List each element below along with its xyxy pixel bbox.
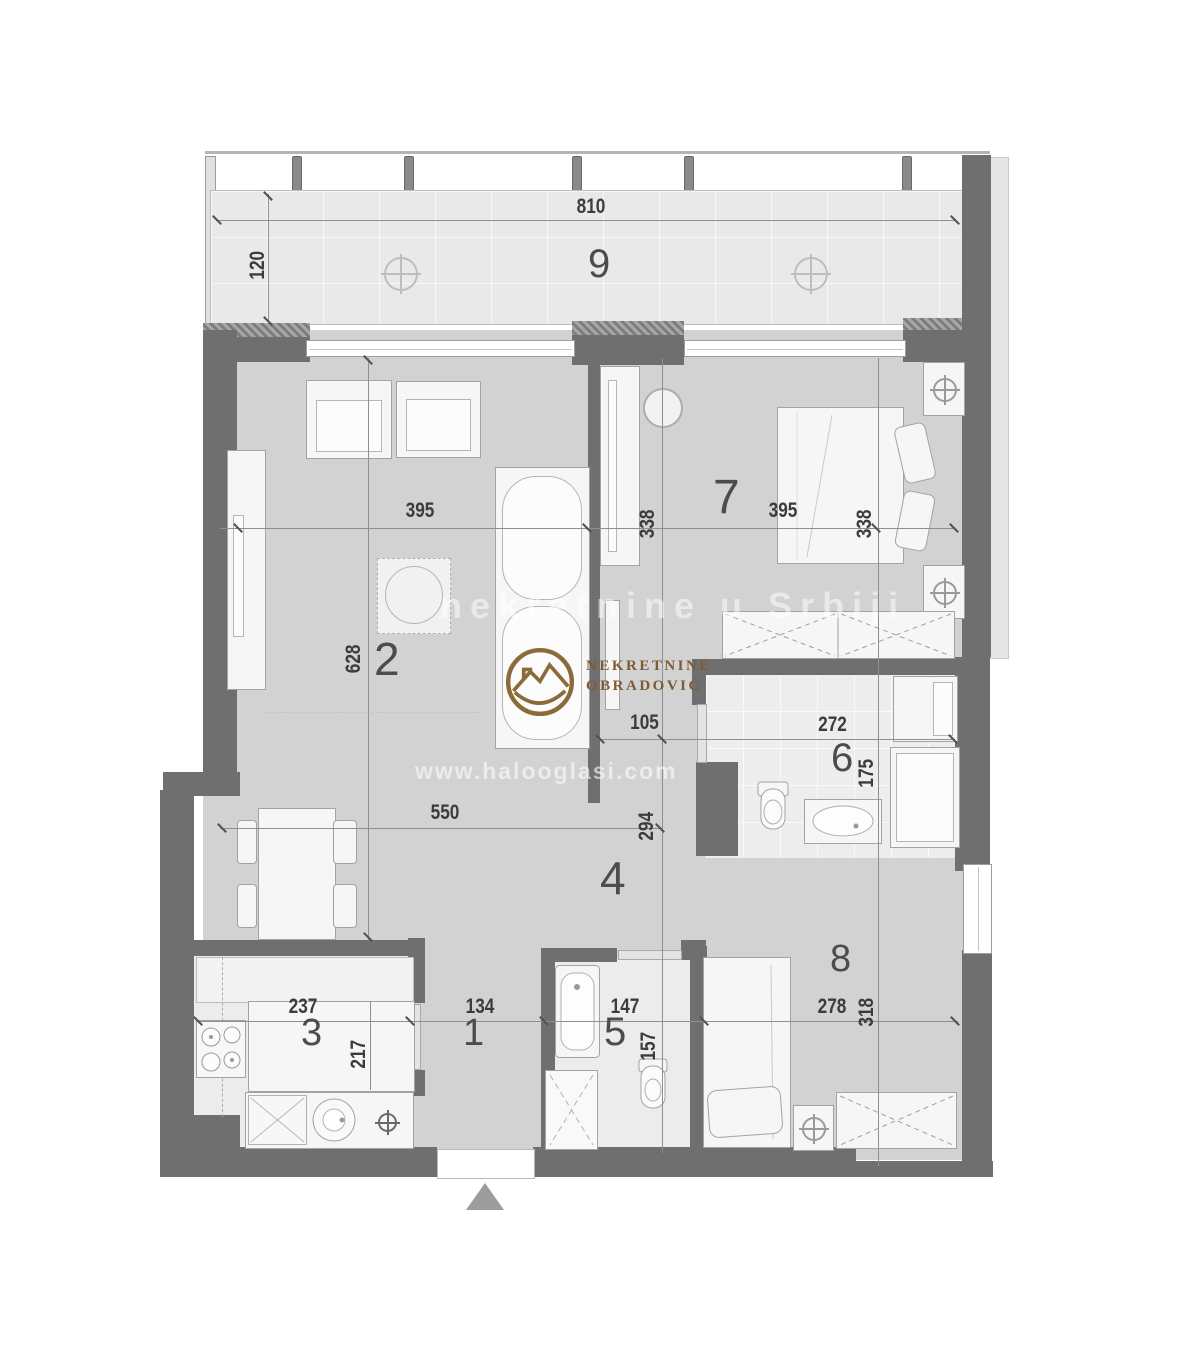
watermark-url: www.halooglasi.com — [415, 758, 678, 785]
dim-label-bedroom7-height: 338 — [853, 486, 877, 538]
railing-post — [404, 156, 414, 194]
wardrobe — [836, 1092, 957, 1149]
washbasin — [804, 799, 882, 844]
room-label-hall: 4 — [600, 855, 626, 901]
wall-right-mid — [955, 657, 990, 871]
dim-label-living-height: 628 — [342, 621, 366, 673]
double-bed — [777, 407, 904, 564]
reference-line — [265, 712, 480, 713]
wall-bottom-bedroom8 — [700, 1147, 856, 1177]
toilet — [755, 781, 791, 831]
dim-label-bedroom8-height: 318 — [855, 977, 879, 1026]
window-bedroom8 — [963, 864, 992, 954]
railing-post — [292, 156, 302, 194]
kitchen-cabinet-x — [248, 1095, 307, 1145]
shower — [545, 1070, 598, 1150]
window-terrace-right — [684, 340, 906, 357]
wall-bottom-kitchen — [237, 1147, 437, 1177]
dining-chair — [237, 820, 257, 864]
window-terrace-left — [306, 340, 575, 357]
room-label-hallway1: 1 — [463, 1014, 484, 1052]
toilet — [637, 1058, 669, 1110]
agency-name-line1: NEKRETNINE — [586, 658, 712, 675]
agency-name-line2: OBRADOVIĆ — [586, 678, 702, 695]
balcony-side-strip — [990, 157, 1009, 659]
wall-bath6-left-block — [696, 762, 738, 856]
dim-label-kitchen-height: 217 — [347, 1019, 371, 1068]
laundry-closet-inner — [933, 682, 953, 736]
bed-pillow — [706, 1085, 783, 1138]
floor-plan: 810 120 395 628 338 395 338 105 272 175 … — [0, 0, 1200, 1369]
dining-chair — [237, 884, 257, 928]
ceiling-light-icon — [384, 257, 418, 291]
bathtub — [555, 965, 600, 1058]
room-label-living: 2 — [374, 636, 400, 682]
room-label-bedroom7: 7 — [713, 474, 740, 522]
dim-label-living-width: 395 — [391, 499, 448, 523]
wall-left-lower — [160, 790, 194, 1125]
dim-label-bedroom8-width: 278 — [803, 995, 860, 1019]
lamp-icon — [933, 378, 957, 402]
wall-bath6-top — [698, 659, 956, 675]
dim-line — [598, 739, 955, 740]
balcony-rail-line — [205, 151, 990, 154]
railing-post — [572, 156, 582, 194]
stove — [196, 1020, 246, 1078]
dim-label-bath6-width: 272 — [806, 713, 859, 737]
wall-bath5-top — [541, 948, 617, 962]
railing-post — [902, 156, 912, 194]
dim-label-hall-height: 294 — [635, 791, 659, 840]
dim-label-bath5-height: 157 — [637, 1011, 661, 1060]
wall-bottom-center — [533, 1147, 705, 1177]
dim-label-balcony-width: 810 — [562, 195, 619, 219]
dim-line — [216, 220, 956, 221]
ceiling-lamp — [643, 388, 683, 428]
wall-right-top — [962, 155, 991, 657]
armchair-seat — [316, 400, 382, 452]
dim-label-corridor-width: 105 — [618, 711, 671, 735]
dim-label-bath6-height: 175 — [855, 738, 879, 787]
ceiling-light-icon — [794, 257, 828, 291]
corridor-wardrobe-door — [608, 380, 617, 552]
dim-line — [368, 358, 369, 940]
dim-label-bedroom7-width: 395 — [754, 499, 811, 523]
wall — [903, 330, 963, 362]
room-label-kitchen: 3 — [301, 1014, 322, 1052]
room-label-bedroom8: 8 — [830, 940, 851, 978]
room-label-bathroom6: 6 — [831, 738, 853, 778]
entrance-arrow — [466, 1183, 504, 1210]
coffee-table — [385, 566, 443, 624]
corridor-wardrobe — [600, 366, 640, 566]
dim-label-balcony-depth: 120 — [246, 230, 270, 279]
entrance-door-gap — [437, 1149, 535, 1179]
railing-post — [684, 156, 694, 194]
watermark-slogan: nekretnine u Srbiji — [440, 585, 906, 627]
burner-icon — [378, 1113, 397, 1132]
wall-corner-bl — [160, 1115, 240, 1177]
door-bathroom5 — [618, 950, 682, 960]
agency-logo-icon — [503, 645, 577, 719]
dim-line — [220, 828, 662, 829]
dining-chair — [333, 884, 357, 928]
dining-chair — [333, 820, 357, 864]
door-bathroom6 — [697, 704, 707, 763]
room-label-terrace: 9 — [588, 244, 610, 284]
room-label-bathroom5: 5 — [604, 1012, 626, 1052]
dim-label-corridor-height: 338 — [636, 486, 660, 538]
armchair-seat — [406, 399, 471, 451]
shower-cabinet-inner — [896, 753, 954, 842]
lamp-icon — [802, 1117, 826, 1141]
lamp-icon — [933, 581, 957, 605]
dim-label-hall-width: 550 — [416, 801, 473, 825]
wall-kitchen-top — [192, 940, 413, 956]
wall-right-lower — [962, 950, 992, 1168]
kitchen-sink — [311, 1097, 357, 1143]
wall-cabinet-door — [233, 515, 244, 637]
sofa-cushion — [502, 476, 582, 600]
dim-line — [662, 358, 663, 1153]
